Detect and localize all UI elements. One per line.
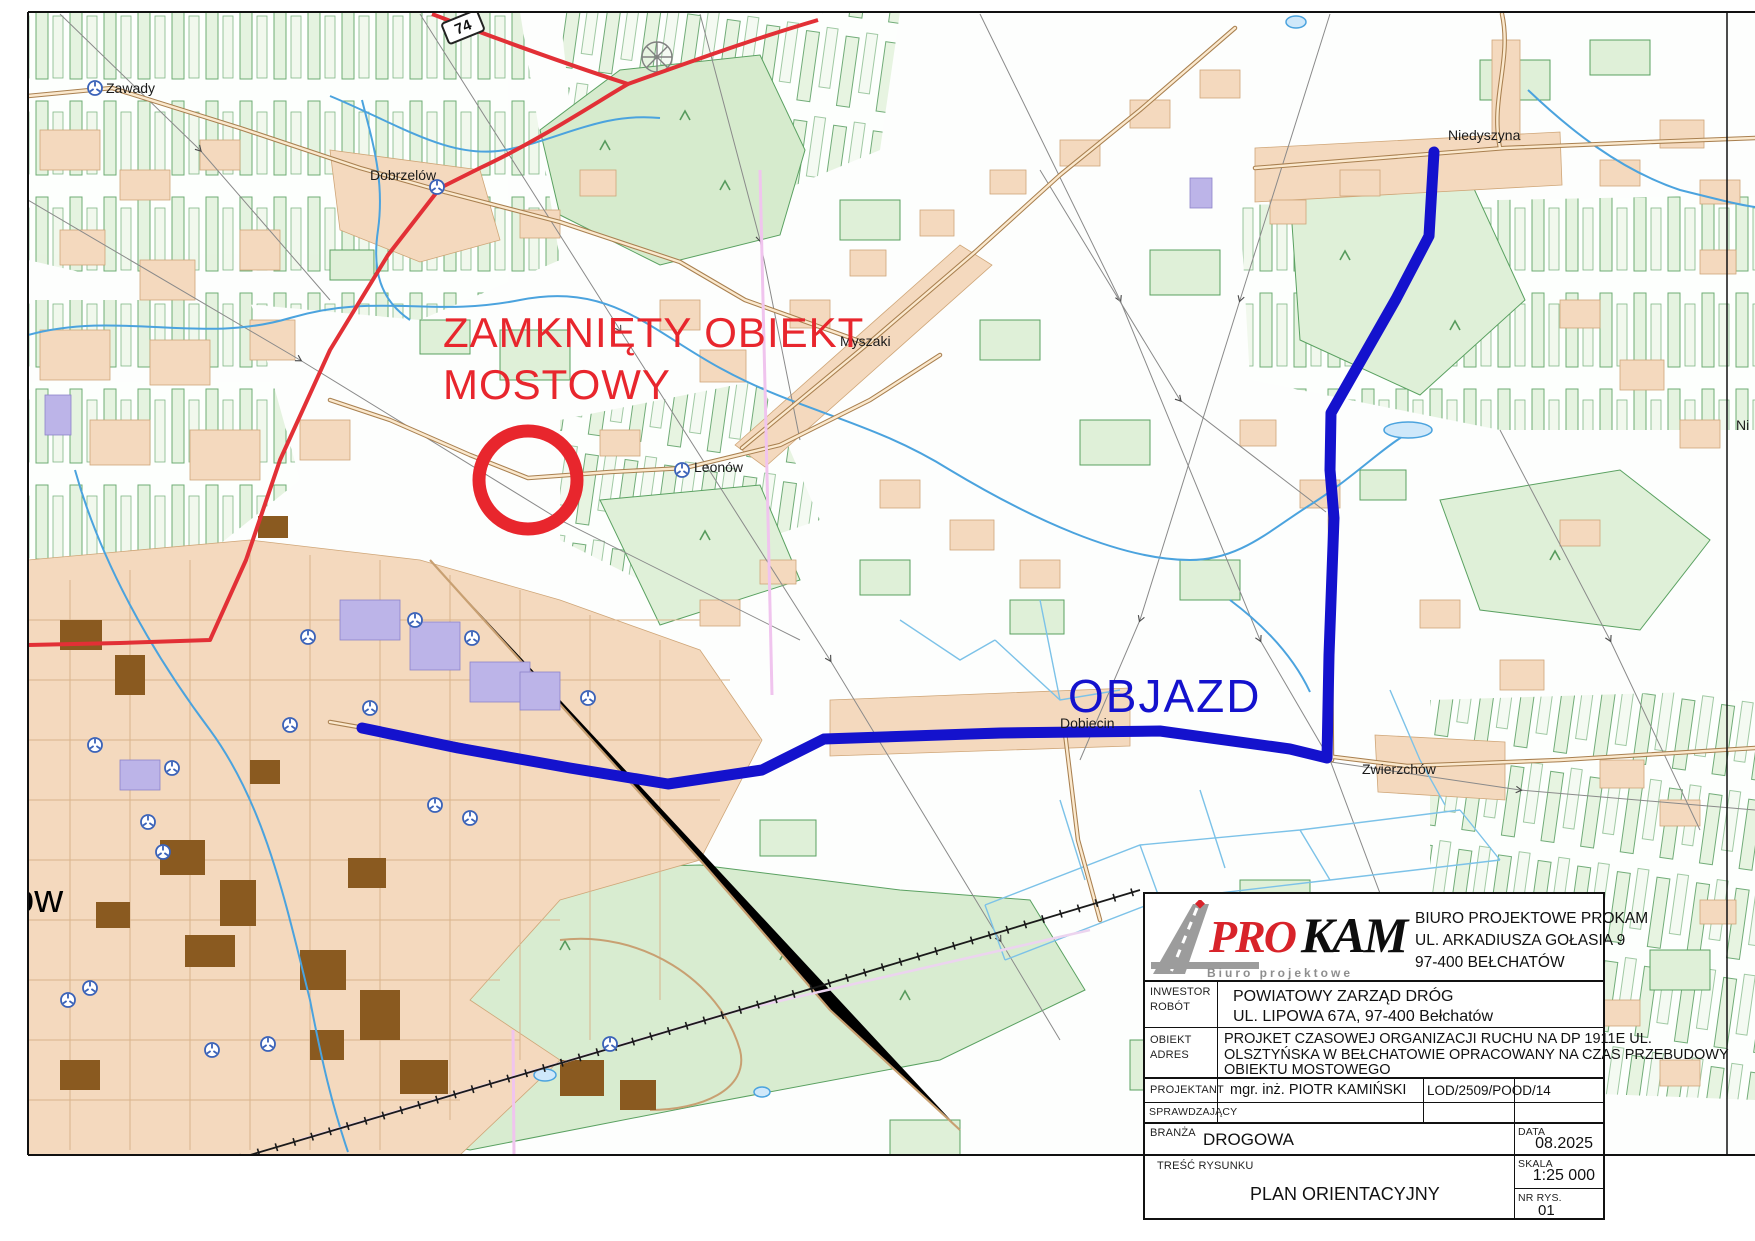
drawing-title: PLAN ORIENTACYJNY [1250, 1184, 1440, 1205]
label-leonow: Leonów [694, 459, 744, 475]
projektant-name: mgr. inż. PIOTR KAMIŃSKI [1230, 1082, 1406, 1098]
tb-line [1145, 1154, 1603, 1156]
logo-tagline: Biuro projektowe [1207, 966, 1353, 980]
company-address: BIURO PROJEKTOWE PROKAM UL. ARKADIUSZA G… [1415, 908, 1648, 974]
projektant-label: PROJEKTANT [1150, 1084, 1224, 1096]
obiekt-value-line: OBIEKTU MOSTOWEGO [1224, 1062, 1391, 1078]
tb-line [1145, 1122, 1603, 1124]
branza-value: DROGOWA [1203, 1130, 1294, 1150]
label-right-partial: Ni [1736, 417, 1749, 433]
closed-bridge-label-line2: MOSTOWY [443, 361, 671, 408]
tb-line [1423, 1077, 1424, 1122]
tb-line [1145, 1102, 1603, 1103]
logo-text-kam: KAM [1301, 906, 1406, 964]
detour-label: OBJAZD [1068, 670, 1261, 722]
label-zwierzchow: Zwierzchów [1362, 761, 1437, 777]
label-city-partial: ów [12, 877, 63, 921]
orientation-plan-page: 74 Zawady Dobrzelów Myszaki Leonów Niedy… [0, 0, 1755, 1241]
company-line: BIURO PROJEKTOWE PROKAM [1415, 908, 1648, 930]
tb-line [1217, 980, 1218, 1122]
tb-line [1145, 980, 1603, 982]
tb-line [1145, 1027, 1603, 1028]
title-block: PRO KAM Biuro projektowe BIURO PROJEKTOW… [1143, 892, 1605, 1220]
obiekt-value-line: PROJKET CZASOWEJ ORGANIZACJI RUCHU NA DP… [1224, 1031, 1652, 1047]
closed-bridge-label-line1: ZAMKNIĘTY OBIEKT [443, 309, 864, 356]
inwestor-value-line: UL. LIPOWA 67A, 97-400 Bełchatów [1233, 1008, 1493, 1026]
company-line: 97-400 BEŁCHATÓW [1415, 952, 1648, 974]
label-dobrzelow: Dobrzelów [370, 167, 437, 183]
robot-label: ROBÓT [1150, 1001, 1190, 1013]
sprawdzajacy-label: SPRAWDZAJĄCY [1149, 1106, 1237, 1118]
company-line: UL. ARKADIUSZA GOŁASIA 9 [1415, 930, 1648, 952]
logo-text-pro: PRO [1209, 910, 1295, 963]
tresc-rysunku-label: TREŚĆ RYSUNKU [1157, 1160, 1254, 1172]
obiekt-value-line: OLSZTYŃSKA W BEŁCHATOWIE OPRACOWANY NA C… [1224, 1047, 1729, 1063]
adres-label: ADRES [1150, 1049, 1189, 1061]
branza-label: BRANŻA [1150, 1127, 1196, 1139]
obiekt-label: OBIEKT [1150, 1034, 1192, 1046]
inwestor-label: INWESTOR [1150, 986, 1211, 998]
nr-rys-value: 01 [1538, 1202, 1555, 1219]
tb-line [1514, 1077, 1515, 1218]
data-value: 08.2025 [1535, 1135, 1593, 1153]
skala-value: 1:25 000 [1533, 1167, 1595, 1185]
inwestor-value-line: POWIATOWY ZARZĄD DRÓG [1233, 988, 1453, 1006]
label-niedyszyna: Niedyszyna [1448, 127, 1521, 143]
rail-yard-icon [642, 42, 672, 72]
projektant-cert-number: LOD/2509/POOD/14 [1427, 1083, 1551, 1098]
label-zawady: Zawady [106, 80, 155, 96]
tb-line [1514, 1188, 1603, 1189]
